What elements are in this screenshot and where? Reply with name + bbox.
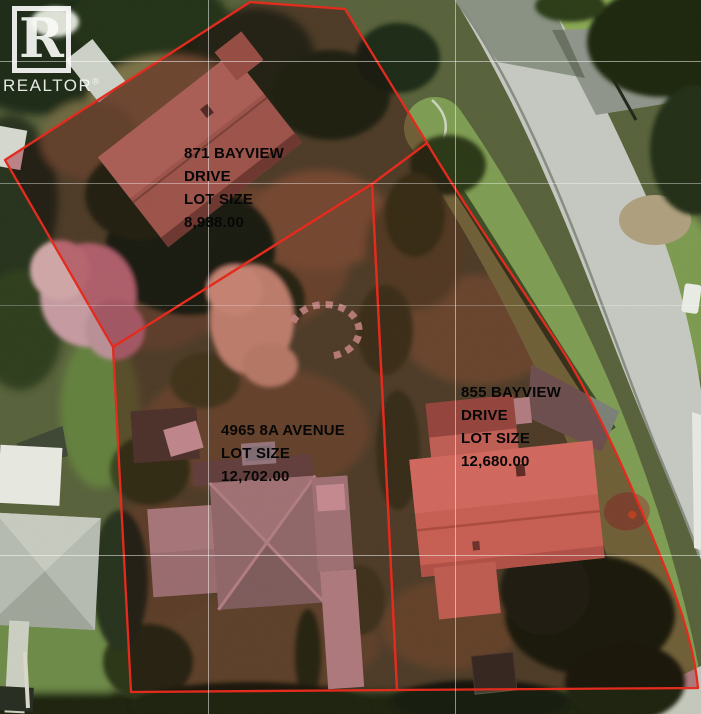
lot-label-4965: 4965 8A AVENUE LOT SIZE 12,702.00	[221, 419, 345, 488]
lot-label-871: 871 BAYVIEW DRIVE LOT SIZE 8,988.00	[184, 142, 284, 234]
lot-label-line: LOT SIZE	[184, 188, 284, 211]
realtor-text: REALTOR	[3, 76, 92, 95]
realtor-wordmark: REALTOR®	[3, 76, 99, 96]
realtor-logo-icon: R	[12, 6, 71, 73]
lot-label-line: 855 BAYVIEW	[461, 381, 561, 404]
lot-label-line: 12,680.00	[461, 450, 561, 473]
lot-label-line: 4965 8A AVENUE	[221, 419, 345, 442]
lot-label-line: LOT SIZE	[461, 427, 561, 450]
lot-label-line: DRIVE	[461, 404, 561, 427]
lot-label-line: LOT SIZE	[221, 442, 345, 465]
lot-label-line: 871 BAYVIEW	[184, 142, 284, 165]
realtor-logo-letter: R	[19, 11, 64, 65]
photo-grain	[0, 0, 701, 714]
realtor-watermark: R REALTOR®	[3, 6, 99, 96]
lot-label-line: 12,702.00	[221, 465, 345, 488]
lot-label-855: 855 BAYVIEW DRIVE LOT SIZE 12,680.00	[461, 381, 561, 473]
registered-mark: ®	[92, 76, 99, 86]
aerial-photo	[0, 0, 701, 714]
lot-label-line: 8,988.00	[184, 211, 284, 234]
lot-label-line: DRIVE	[184, 165, 284, 188]
aerial-map: 871 BAYVIEW DRIVE LOT SIZE 8,988.00 4965…	[0, 0, 701, 714]
